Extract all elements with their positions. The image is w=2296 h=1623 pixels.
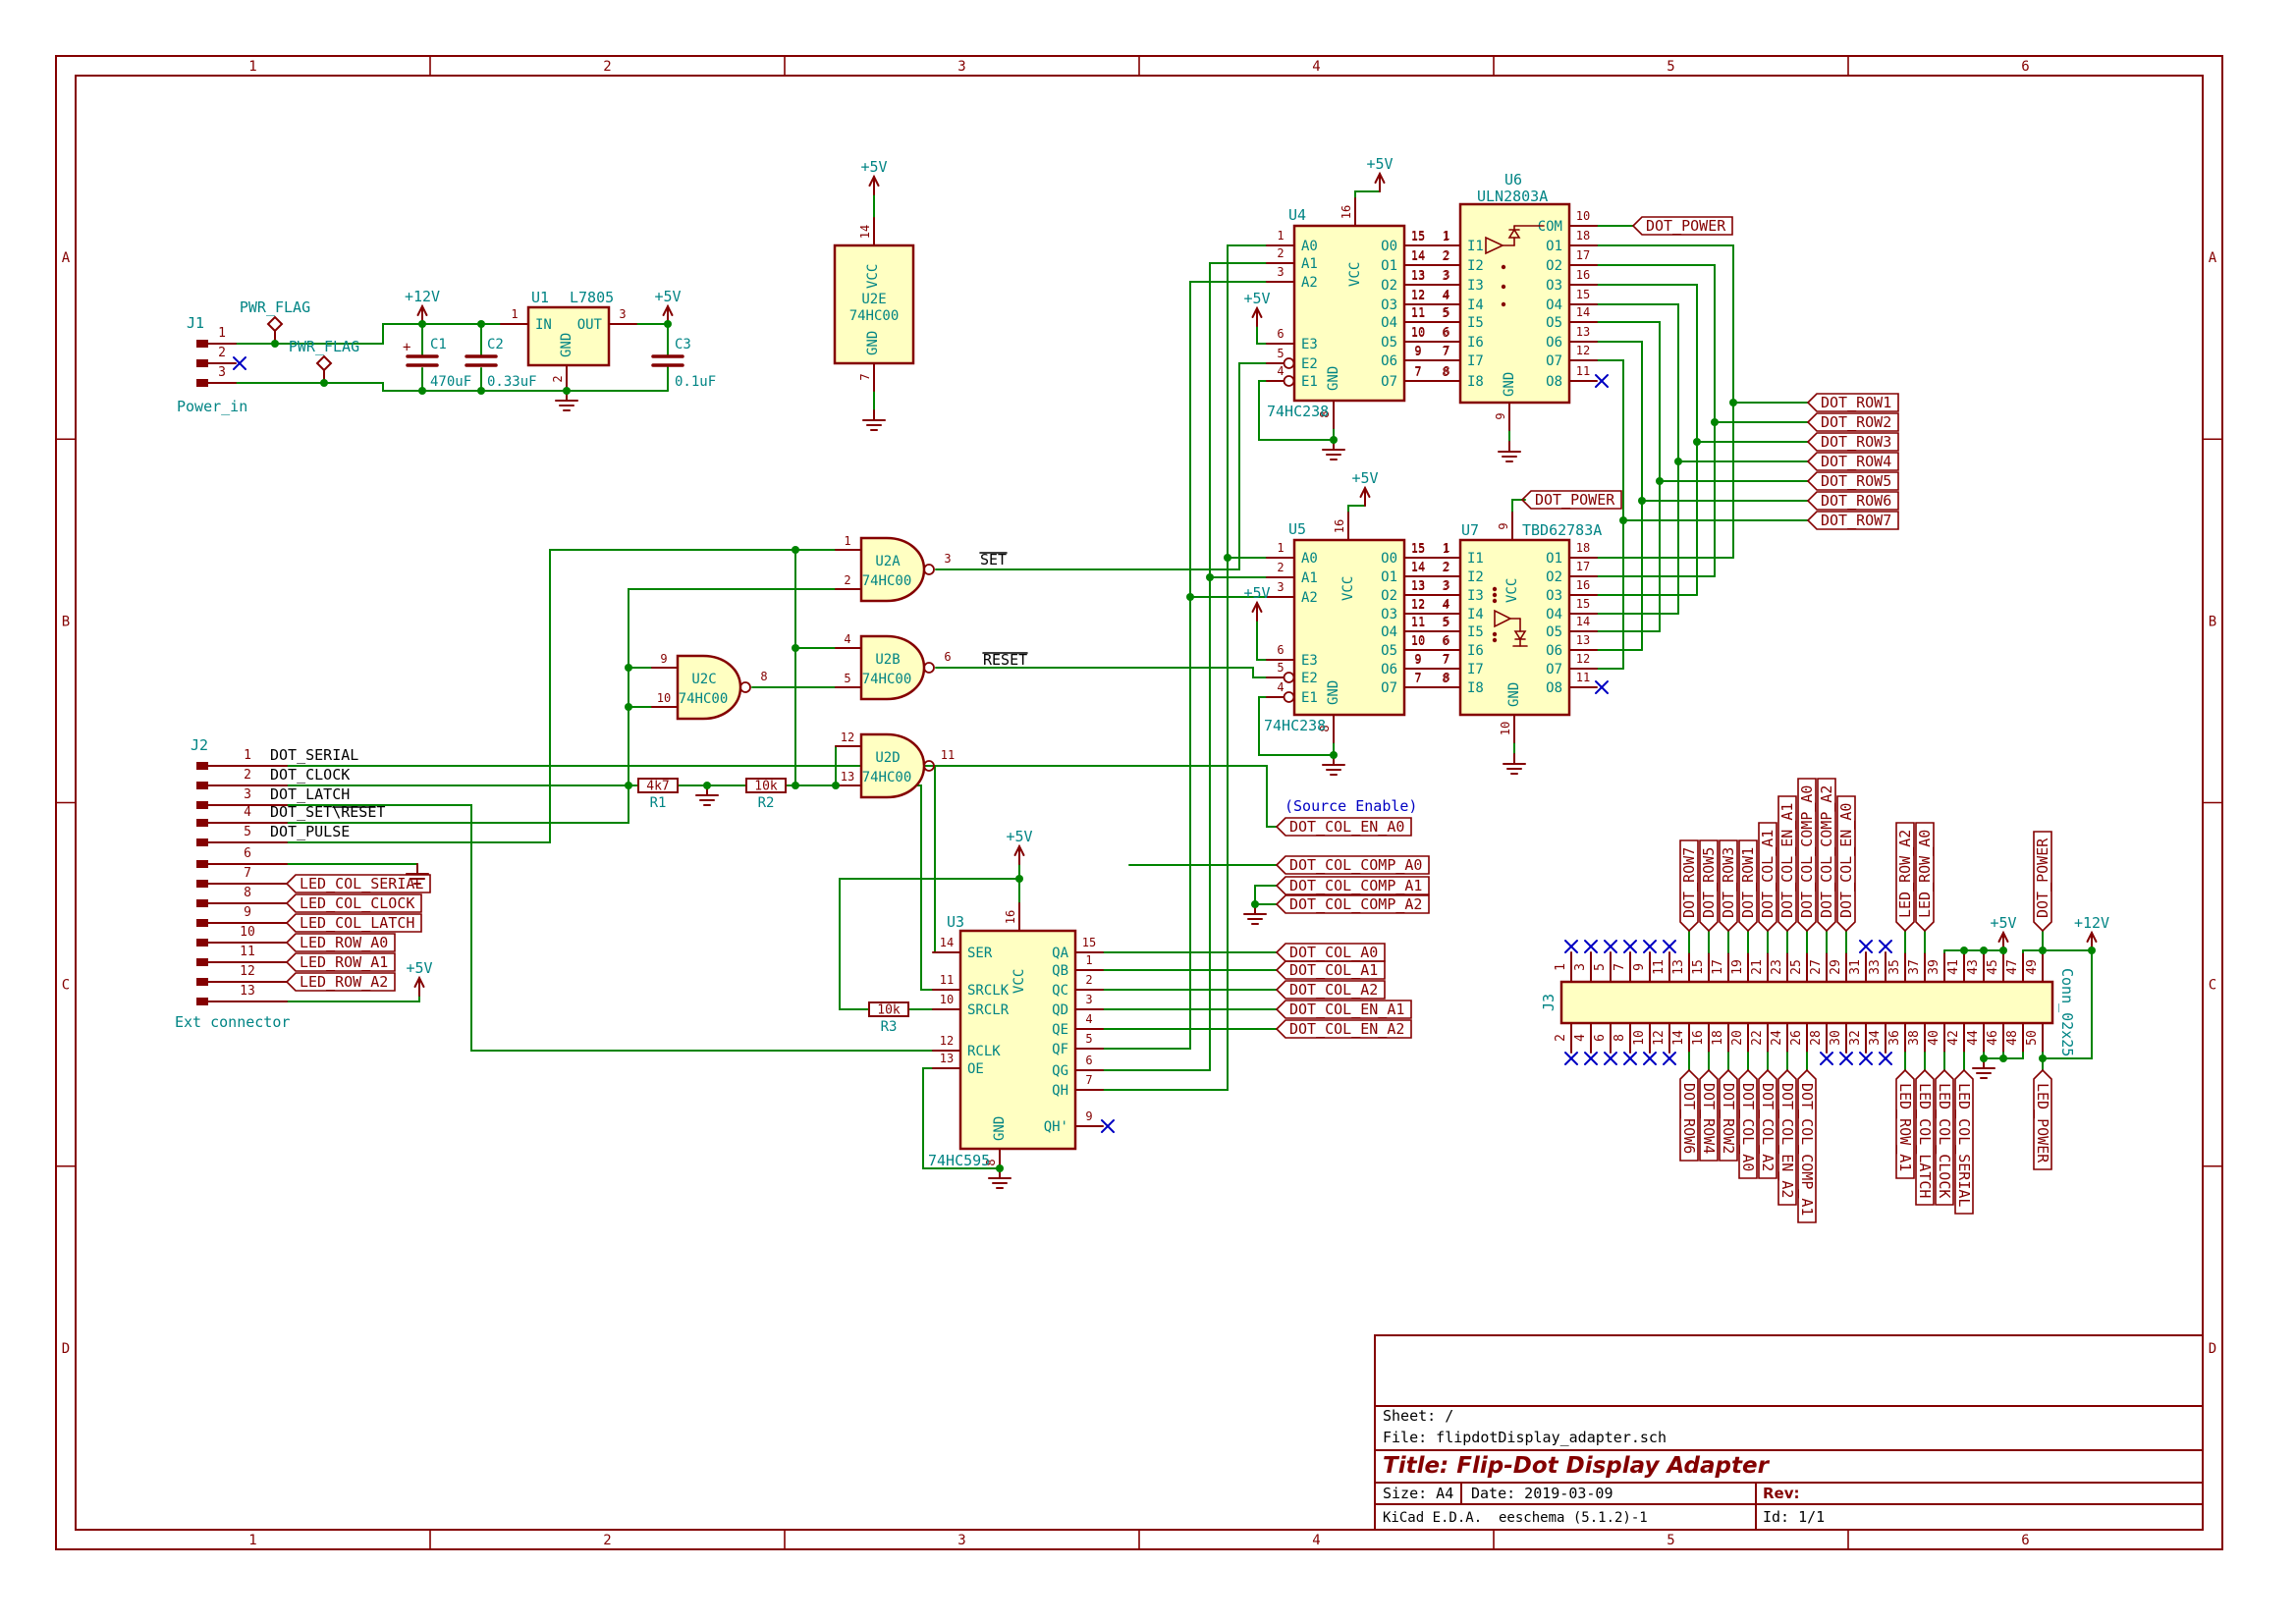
global-label-text: DOT_COL_COMP_A1 (1798, 1083, 1816, 1216)
pin-number: 4 (244, 805, 251, 820)
pin-number: 30 (1829, 1030, 1843, 1046)
pin-number: 13 (1671, 959, 1686, 975)
gate-body (861, 734, 924, 797)
global-label-text: LED_COL_SERIAL (1955, 1083, 1973, 1207)
power-label: +5V (1006, 828, 1032, 845)
global-label-text: DOT_COL_COMP_A2 (1289, 895, 1422, 913)
pin-number: 11 (240, 945, 255, 959)
border-col-label: 3 (957, 59, 965, 75)
global-label-DOT_COL_A2: DOT_COL_A2 (1277, 981, 1385, 999)
gate-body (678, 656, 740, 719)
pin-number: 5 (244, 825, 251, 839)
pin-number: 3 (1085, 993, 1092, 1006)
border-row-label: A (62, 250, 71, 266)
pin-number: 15 (1691, 959, 1706, 975)
annotation-text: ULN2803A (1477, 188, 1548, 205)
pin-pad (196, 958, 208, 966)
global-label-DOT_COL_COMP_A2: DOT_COL_COMP_A2 (1277, 895, 1429, 913)
pin-name: QH' (1044, 1119, 1068, 1135)
wire (1257, 621, 1267, 660)
pin-name: A0 (1301, 239, 1318, 254)
pin-number: 11 (1576, 671, 1590, 684)
global-label-text: DOT_COL_A2 (1289, 981, 1378, 999)
global-label-text: LED_ROW_A2 (300, 973, 388, 991)
border-row-label: B (2209, 614, 2216, 629)
power-label: +5V (1243, 584, 1270, 602)
pin-number: 8 (760, 670, 767, 683)
pin-name: O6 (1546, 643, 1562, 659)
pin-invert-bubble (1285, 673, 1294, 682)
junction-dot (1693, 438, 1701, 446)
titleblock-date: Date: 2019-03-09 (1471, 1485, 1613, 1502)
global-label-text: DOT_COL_COMP_A1 (1289, 877, 1422, 894)
pin-number: 6 (1443, 325, 1449, 339)
pin-number: 2 (1443, 248, 1449, 262)
global-label-text: DOT_COL_EN_A2 (1289, 1020, 1404, 1038)
global-label-text: LED_ROW_A1 (1896, 1083, 1914, 1171)
pin-name: O7 (1381, 680, 1397, 696)
schematic-canvas: 1511421331241151069778151142133124115106… (0, 0, 2296, 1623)
global-label-DOT_COL_EN_A1: DOT_COL_EN_A1 (1277, 1001, 1411, 1018)
pin-number: 6 (1443, 633, 1449, 647)
pin-name: E1 (1301, 690, 1318, 706)
connector-body (1561, 982, 2052, 1023)
pin-number: 16 (1576, 578, 1590, 592)
pin-number: 16 (1333, 519, 1346, 533)
power-label: +5V (860, 158, 887, 176)
border-row-label: D (62, 1341, 70, 1357)
pin-number: 6 (1277, 327, 1284, 341)
pin-number: 1 (1085, 953, 1092, 967)
pin-pad (196, 762, 208, 770)
pin-name: I4 (1467, 607, 1484, 622)
pin-number: 9 (1632, 963, 1647, 971)
decor-dot (1502, 265, 1505, 269)
wire (936, 363, 1267, 569)
pin-number: 38 (1907, 1030, 1922, 1046)
pin-number: 1 (1277, 541, 1284, 555)
global-label-text: DOT_ROW6 (1821, 492, 1891, 510)
pin-name: GND (1326, 366, 1341, 391)
gate-U2A: 123U2A74HC00 (836, 534, 952, 601)
pin-number: 18 (1576, 229, 1590, 243)
junction-dot (1960, 947, 1968, 954)
global-label-LED_ROW_A0: LED_ROW_A0 (1916, 823, 1934, 931)
junction-dot (625, 782, 632, 789)
pin-number: 3 (619, 307, 626, 321)
power-symbol: +5V (406, 959, 432, 996)
junction-dot (2088, 947, 2096, 954)
pin-number: 9 (1497, 522, 1510, 529)
pin-number: 17 (1576, 248, 1590, 262)
pin-number: 9 (660, 652, 667, 666)
pin-name: I3 (1467, 588, 1484, 604)
pin-number: 2 (1277, 246, 1284, 260)
power-symbol: +5V (1366, 155, 1393, 191)
global-label-text: LED_COL_LATCH (1916, 1083, 1934, 1198)
pin-number: 6 (1593, 1034, 1608, 1042)
global-label-DOT_ROW5: DOT_ROW5 (1808, 472, 1898, 490)
pin-name: A2 (1301, 590, 1318, 606)
pin-number: 10 (1499, 722, 1512, 735)
global-label-text: DOT_ROW5 (1700, 847, 1718, 918)
global-label-text: DOT_ROW4 (1821, 453, 1891, 470)
cap-value: 0.1uF (675, 374, 716, 390)
border-col-label: 6 (2021, 1533, 2029, 1548)
pin-number: 5 (1277, 347, 1284, 360)
pin-number: 40 (1927, 1030, 1941, 1046)
annotation-text: RESET (983, 651, 1027, 669)
global-label-text: DOT_ROW4 (1700, 1083, 1718, 1154)
pwr-flag-diamond-icon (268, 317, 282, 331)
gate-ref: U2D (875, 750, 900, 766)
global-label-DOT_COL_A1: DOT_COL_A1 (1277, 961, 1385, 979)
pin-number: 18 (1711, 1030, 1725, 1046)
pin-number: 5 (844, 672, 850, 685)
wire (1597, 322, 1660, 631)
pin-number: 5 (1443, 615, 1449, 628)
pin-number: 16 (1339, 205, 1353, 219)
pin-number: 12 (1576, 344, 1590, 357)
pin-number: 12 (940, 1034, 954, 1048)
pin-number: 20 (1730, 1030, 1745, 1046)
pin-name: VCC (1347, 262, 1363, 287)
pin-number: 2 (1085, 973, 1092, 987)
pin-name: O3 (1381, 607, 1397, 622)
annotation-text: J2 (191, 736, 208, 754)
global-label-text: LED_ROW_A0 (300, 934, 388, 951)
border-col-label: 2 (603, 1533, 611, 1548)
global-label-DOT_ROW6: DOT_ROW6 (1808, 492, 1898, 510)
pin-name: I8 (1467, 374, 1484, 390)
pin-number: 47 (2005, 959, 2020, 975)
power-label: +12V (405, 288, 440, 305)
pin-name: O2 (1546, 569, 1562, 585)
pin-number: 10 (940, 993, 954, 1006)
border-col-label: 1 (248, 59, 256, 75)
global-label-text: DOT_COL_COMP_A0 (1798, 785, 1816, 918)
titleblock-size: Size: A4 (1383, 1485, 1453, 1502)
pin-name: SER (967, 946, 993, 961)
pin-number: 13 (940, 1052, 954, 1065)
pin-number: 16 (1004, 910, 1017, 924)
pin-name: SRCLK (967, 983, 1010, 999)
global-label-text: DOT_ROW7 (1821, 512, 1891, 529)
wire (287, 996, 419, 1001)
global-label-text: LED_ROW_A2 (1896, 830, 1914, 918)
pin-number: 26 (1789, 1030, 1804, 1046)
pin-number: 35 (1887, 959, 1902, 975)
pin-name: O2 (1546, 258, 1562, 274)
global-label-text: LED_ROW_A0 (1916, 830, 1934, 918)
pwr-flag-symbol: PWR_FLAG (289, 338, 359, 383)
global-label-DOT_POWER: DOT_POWER (2034, 832, 2051, 931)
power-symbol: +5V (654, 288, 681, 324)
annotation-text: U7 (1461, 521, 1479, 539)
global-label-text: LED_ROW_A1 (300, 953, 388, 971)
annotation-text: 74HC238 (1267, 403, 1329, 420)
power-symbol: +5V (1243, 584, 1270, 621)
pin-number: 14 (858, 225, 872, 239)
pin-number: 41 (1946, 959, 1961, 975)
pin-name: GND (1502, 372, 1517, 397)
pin-pad (196, 899, 208, 907)
pin-pad (196, 819, 208, 827)
pin-pad (196, 340, 208, 348)
global-label-DOT_ROW3: DOT_ROW3 (1720, 840, 1737, 931)
global-label-LED_ROW_A1: LED_ROW_A1 (287, 953, 395, 971)
cap-value: 470uF (430, 374, 471, 390)
pin-name: I7 (1467, 662, 1484, 677)
global-label-DOT_ROW4: DOT_ROW4 (1808, 453, 1898, 470)
pin-name: VCC (865, 264, 881, 289)
connector-J3: 1357911131517192123252729313335373941434… (1554, 931, 2052, 1070)
global-label-DOT_ROW2: DOT_ROW2 (1808, 413, 1898, 431)
pin-number: 24 (1770, 1030, 1784, 1046)
pin-invert-bubble (1285, 376, 1294, 386)
global-label-DOT_COL_COMP_A0: DOT_COL_COMP_A0 (1798, 779, 1816, 931)
junction-dot (1330, 436, 1338, 444)
pin-name: GND (992, 1116, 1008, 1141)
decor-dot (1493, 632, 1497, 636)
junction-dot (1711, 418, 1719, 426)
junction-dot (2039, 947, 2047, 954)
pin-pad (196, 939, 208, 947)
gate-value: 74HC00 (862, 573, 912, 589)
pin-number: 2 (844, 573, 850, 587)
global-label-DOT_COL_EN_A2: DOT_COL_EN_A2 (1778, 1070, 1796, 1205)
pin-name: O4 (1546, 298, 1562, 313)
cap-ref: C3 (675, 337, 691, 352)
pin-name: O2 (1381, 278, 1397, 294)
border-col-label: 3 (957, 1533, 965, 1548)
power-label: +5V (1243, 290, 1270, 307)
pin-number: 27 (1809, 959, 1824, 975)
power-symbol: +5V (1351, 469, 1378, 506)
border-col-label: 1 (248, 1533, 256, 1548)
global-label-text: DOT_ROW5 (1821, 472, 1891, 490)
junction-dot (1999, 1055, 2007, 1062)
titleblock-id: Id: 1/1 (1763, 1508, 1825, 1526)
global-label-DOT_ROW1: DOT_ROW1 (1739, 840, 1757, 931)
pin-pad (196, 919, 208, 927)
pin-invert-bubble (924, 663, 934, 673)
global-label-DOT_ROW6: DOT_ROW6 (1680, 1070, 1698, 1161)
pin-number: 15 (1411, 541, 1425, 555)
global-label-text: DOT_POWER (1646, 217, 1726, 235)
pin-number: 5 (1085, 1032, 1092, 1046)
pin-name: E2 (1301, 356, 1318, 372)
pin-name: I8 (1467, 680, 1484, 696)
global-label-text: DOT_ROW2 (1821, 413, 1891, 431)
connector-J1: 123 (196, 326, 236, 387)
pin-number: 4 (1443, 597, 1449, 611)
global-label-DOT_ROW4: DOT_ROW4 (1700, 1070, 1718, 1161)
pin-name: GND (1326, 680, 1341, 705)
title-block: Sheet: / File: flipdotDisplay_adapter.sc… (1375, 1335, 2203, 1530)
annotation-text: 74HC238 (1264, 717, 1326, 734)
global-label-DOT_COL_A1: DOT_COL_A1 (1759, 823, 1777, 931)
pin-number: 14 (1671, 1030, 1686, 1046)
global-label-text: DOT_COL_COMP_A2 (1818, 785, 1835, 918)
global-label-LED_ROW_A2: LED_ROW_A2 (287, 973, 395, 991)
junction-dot (2039, 1055, 2047, 1062)
global-label-text: DOT_COL_A1 (1759, 830, 1777, 918)
resistor-R1: 4k7R1 (638, 779, 678, 811)
border-col-label: 5 (1667, 1533, 1674, 1548)
global-label-text: DOT_ROW2 (1720, 1083, 1737, 1154)
global-label-DOT_ROW1: DOT_ROW1 (1808, 394, 1898, 411)
junction-dot (1638, 497, 1646, 505)
pin-name: I1 (1467, 239, 1484, 254)
pin-name: OE (967, 1061, 984, 1077)
global-label-DOT_COL_A0: DOT_COL_A0 (1277, 944, 1385, 961)
pin-name: QF (1052, 1042, 1068, 1057)
junction-dot (832, 782, 840, 789)
pin-number: 43 (1966, 959, 1981, 975)
pin-number: 11 (940, 973, 954, 987)
pin-pad (196, 860, 208, 868)
global-label-DOT_COL_EN_A2: DOT_COL_EN_A2 (1277, 1020, 1411, 1038)
pin-name: A2 (1301, 275, 1318, 291)
junction-dot (320, 379, 328, 387)
power-symbol: +5V (1006, 828, 1032, 864)
pin-number: 31 (1848, 959, 1863, 975)
global-label-DOT_ROW3: DOT_ROW3 (1808, 433, 1898, 451)
annotation-text: DOT_PULSE (270, 823, 350, 840)
pin-name: I7 (1467, 353, 1484, 369)
pin-pad (196, 978, 208, 986)
ic-label: 74HC00 (849, 308, 900, 324)
wire (1103, 282, 1267, 1049)
junction-dot (1251, 900, 1259, 908)
pin-number: 3 (1443, 578, 1449, 592)
border-row-label: A (2209, 250, 2217, 266)
pin-number: 42 (1946, 1030, 1961, 1046)
pin-name: E2 (1301, 671, 1318, 686)
junction-dot (792, 782, 799, 789)
pin-number: 19 (1730, 959, 1745, 975)
pin-number: 15 (1411, 229, 1425, 243)
global-label-text: DOT_ROW7 (1680, 847, 1698, 918)
pin-number: 4 (1277, 680, 1284, 694)
pin-number: 39 (1927, 959, 1941, 975)
pin-number: 13 (1411, 578, 1425, 592)
gate-ref: U2C (691, 672, 716, 687)
border-row-label: C (62, 978, 70, 994)
pin-name: O3 (1381, 298, 1397, 313)
global-label-DOT_ROW2: DOT_ROW2 (1720, 1070, 1737, 1161)
schematic-page: 1511421331241151069778151142133124115106… (0, 0, 2296, 1623)
gate-value: 74HC00 (862, 672, 912, 687)
pin-number: 44 (1966, 1030, 1981, 1046)
power-label: +5V (1990, 914, 2016, 932)
pin-name: O8 (1546, 680, 1562, 696)
pin-name: O6 (1381, 353, 1397, 369)
pin-name: O7 (1546, 662, 1562, 677)
pin-number: 4 (1085, 1012, 1092, 1026)
global-label-text: DOT_COL_A0 (1739, 1083, 1757, 1171)
ic-U3: 14SER11SRCLK10SRCLR12RCLK13OE15QA1QB2QC3… (933, 903, 1103, 1176)
border-row-label: C (2209, 978, 2216, 994)
pin-number: 6 (1277, 643, 1284, 657)
global-label-text: DOT_COL_EN_A0 (1289, 818, 1404, 836)
pin-name: O5 (1546, 315, 1562, 331)
global-label-text: DOT_COL_EN_A2 (1778, 1083, 1796, 1198)
pin-number: 14 (1411, 248, 1425, 262)
global-label-DOT_POWER: DOT_POWER (1522, 491, 1621, 509)
ic-U2E: 147VCCGNDU2E74HC00 (835, 218, 913, 391)
pin-number: 9 (1085, 1109, 1092, 1123)
pin-pad (196, 801, 208, 809)
pin-number: 15 (1576, 288, 1590, 301)
power-label: +5V (406, 959, 432, 977)
pin-name: O8 (1546, 374, 1562, 390)
pin-number: 14 (1576, 615, 1590, 628)
global-label-DOT_COL_EN_A1: DOT_COL_EN_A1 (1778, 796, 1796, 931)
pin-name: VCC (1504, 578, 1520, 603)
gnd-symbol (863, 410, 885, 430)
annotation-text: U1 (531, 289, 549, 306)
pin-name: O1 (1546, 239, 1562, 254)
pin-number: 46 (1986, 1030, 2000, 1046)
pin-number: 1 (218, 326, 226, 341)
titleblock-tool: KiCad E.D.A. eeschema (5.1.2)-1 (1383, 1510, 1648, 1526)
pin-invert-bubble (740, 682, 750, 692)
pin-number: 12 (1652, 1030, 1667, 1046)
global-label-text: DOT_POWER (1535, 491, 1615, 509)
resistor-value: 10k (877, 1003, 901, 1018)
pin-number: 37 (1907, 959, 1922, 975)
global-label-text: DOT_ROW1 (1821, 394, 1891, 411)
pin-number: 4 (844, 632, 850, 646)
global-label-DOT_COL_A0: DOT_COL_A0 (1739, 1070, 1757, 1178)
pin-number: 3 (1277, 265, 1284, 279)
wire (1255, 886, 1277, 904)
junction-dot (1224, 554, 1231, 562)
wire (1257, 326, 1267, 344)
annotation-text: Conn_02x25 (2058, 968, 2076, 1056)
pin-number: 2 (244, 768, 251, 783)
annotation-text: DOT_LATCH (270, 785, 350, 803)
pin-number: 45 (1986, 959, 2000, 975)
pwr-flag-label: PWR_FLAG (289, 338, 359, 355)
junction-dot (271, 340, 279, 348)
junction-dot (1729, 399, 1737, 406)
pin-number: 17 (1711, 959, 1725, 975)
pin-name: RCLK (967, 1044, 1001, 1059)
border-col-label: 4 (1312, 59, 1320, 75)
annotation-text: (Source Enable) (1285, 797, 1417, 815)
pin-number: 11 (1411, 305, 1425, 319)
pin-number: 1 (1277, 229, 1284, 243)
annotation-text: DOT_SET\RESET (270, 803, 385, 821)
annotation-text: DOT_SERIAL (270, 746, 358, 764)
power-symbol: +12V (2074, 914, 2109, 950)
annotation-text: Ext connector (175, 1013, 290, 1031)
pin-name: O0 (1381, 551, 1397, 567)
pin-name: OUT (577, 317, 603, 333)
wire (1597, 360, 1623, 669)
pin-name: O5 (1546, 624, 1562, 640)
annotation-text: U5 (1288, 520, 1306, 538)
power-label: +12V (2074, 914, 2109, 932)
wire (287, 550, 861, 842)
resistor-R2: 10kR2 (746, 779, 786, 811)
annotation-text: U3 (947, 913, 964, 931)
gate-value: 74HC00 (679, 691, 729, 707)
power-label: +5V (654, 288, 681, 305)
